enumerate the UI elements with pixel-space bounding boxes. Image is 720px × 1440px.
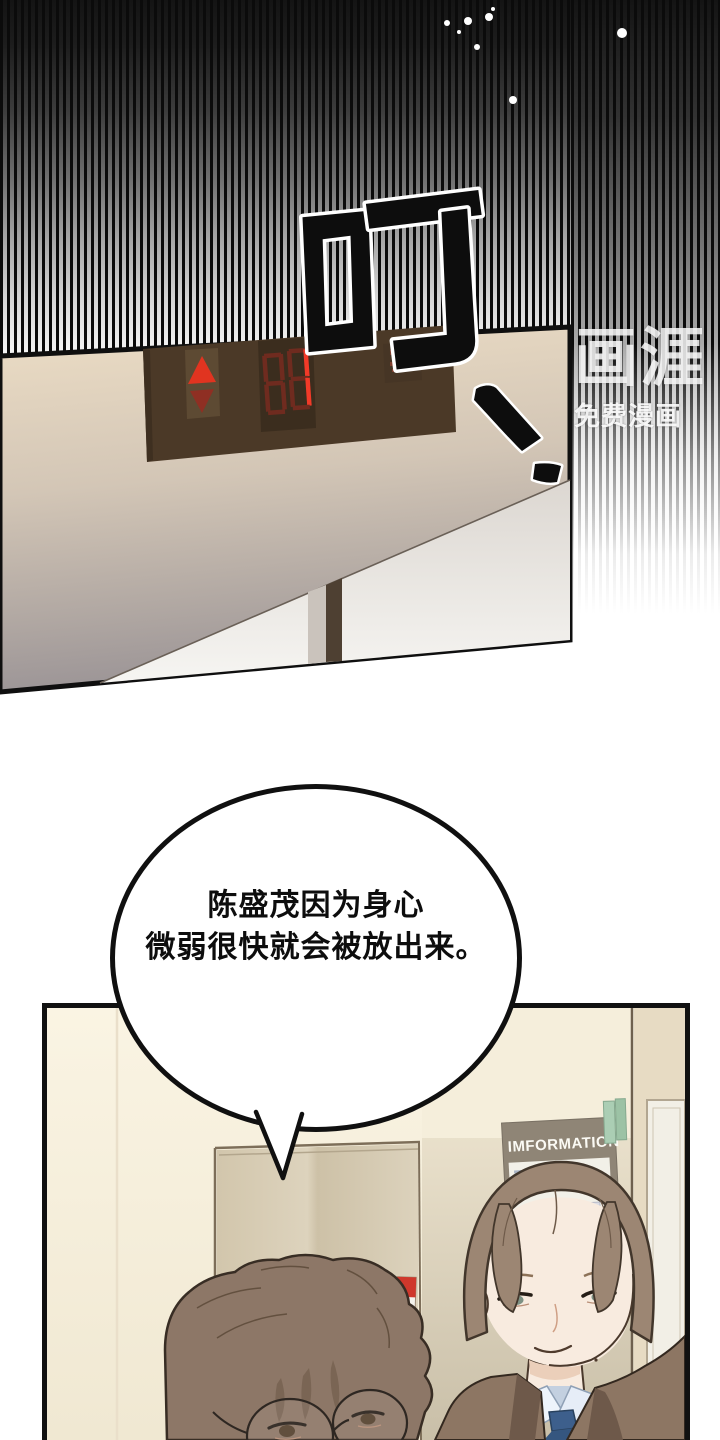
sfx-ding	[275, 172, 500, 387]
far-doorframe-dark	[326, 578, 342, 662]
watermark-logo: 画涯	[574, 322, 720, 394]
speech-line-1: 陈盛茂因为身心	[115, 885, 517, 927]
far-doorframe-light	[308, 585, 326, 664]
sparkle-dots	[400, 0, 720, 120]
speech-bubble-tail	[248, 1098, 312, 1186]
speech-bubble: 陈盛茂因为身心 微弱很快就会被放出来。	[110, 784, 522, 1132]
webtoon-page: 画涯 免费漫画	[0, 0, 720, 1440]
site-watermark: 画涯 免费漫画	[574, 322, 720, 433]
character-left	[165, 1255, 432, 1440]
chin-mole	[594, 1358, 597, 1361]
green-sign	[603, 1099, 627, 1144]
speech-text: 陈盛茂因为身心 微弱很快就会被放出来。	[115, 885, 517, 969]
panel-elevator-scene: 画涯 免费漫画	[0, 0, 720, 710]
emphasis-dash-marks	[462, 378, 572, 490]
speech-line-2: 微弱很快就会被放出来。	[115, 927, 517, 969]
watermark-tagline: 免费漫画	[574, 396, 720, 433]
